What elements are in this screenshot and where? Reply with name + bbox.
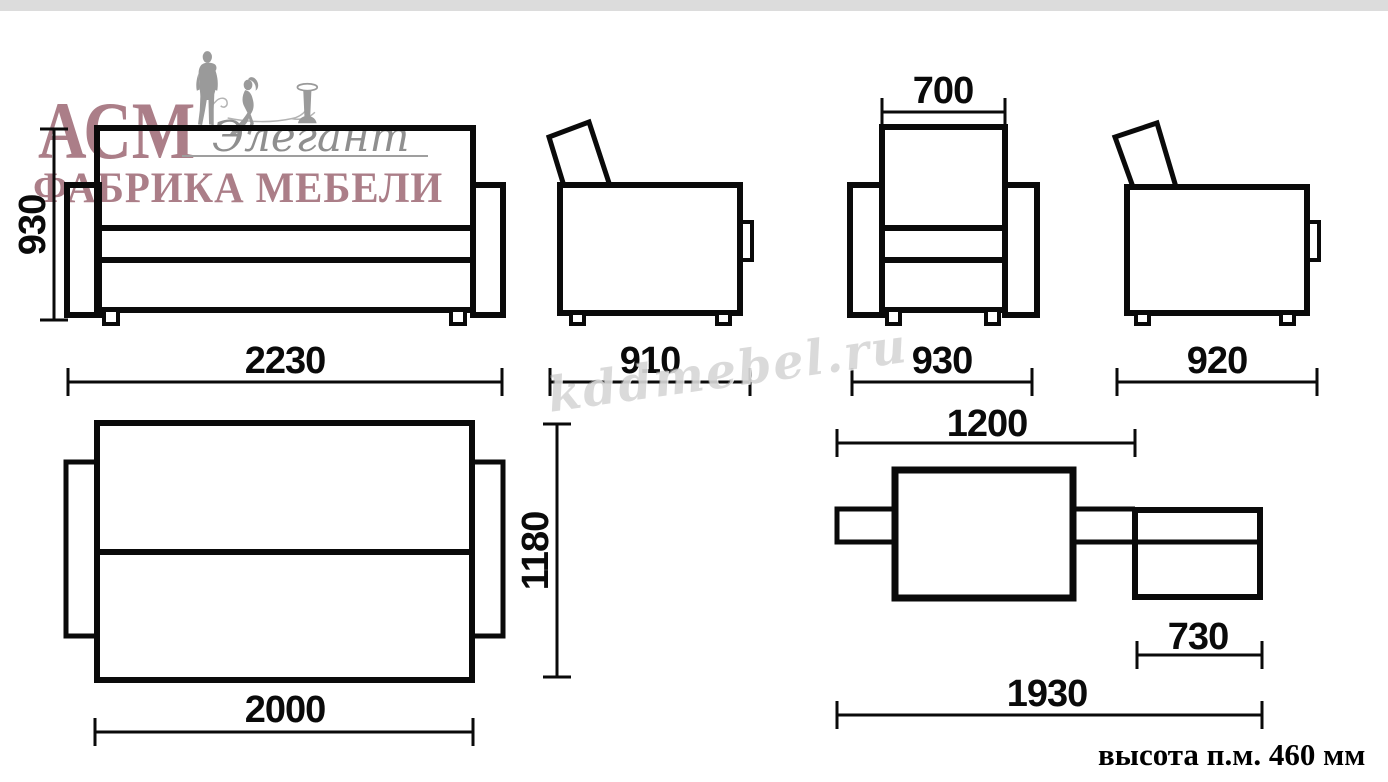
ottoman-label: 730: [1168, 618, 1228, 656]
sleeping-height-note: высота п.м. 460 мм: [1098, 739, 1364, 772]
armchair-backrest-label: 700: [913, 72, 973, 110]
sleeping-length-label: 2000: [245, 691, 326, 729]
armchair-depth-label: 920: [1187, 342, 1247, 380]
sofa-width-label: 2230: [245, 342, 326, 380]
total-length-label: 1930: [1007, 675, 1088, 713]
armchair-width-label: 930: [912, 342, 972, 380]
furniture-dimensions-sheet: АСМ ФАБРИКА МЕБЕЛИ: [0, 0, 1388, 782]
sleeping-width-label: 1180: [517, 512, 555, 590]
main-section-label: 1200: [947, 405, 1028, 443]
sofa-height-label: 930: [14, 195, 52, 255]
